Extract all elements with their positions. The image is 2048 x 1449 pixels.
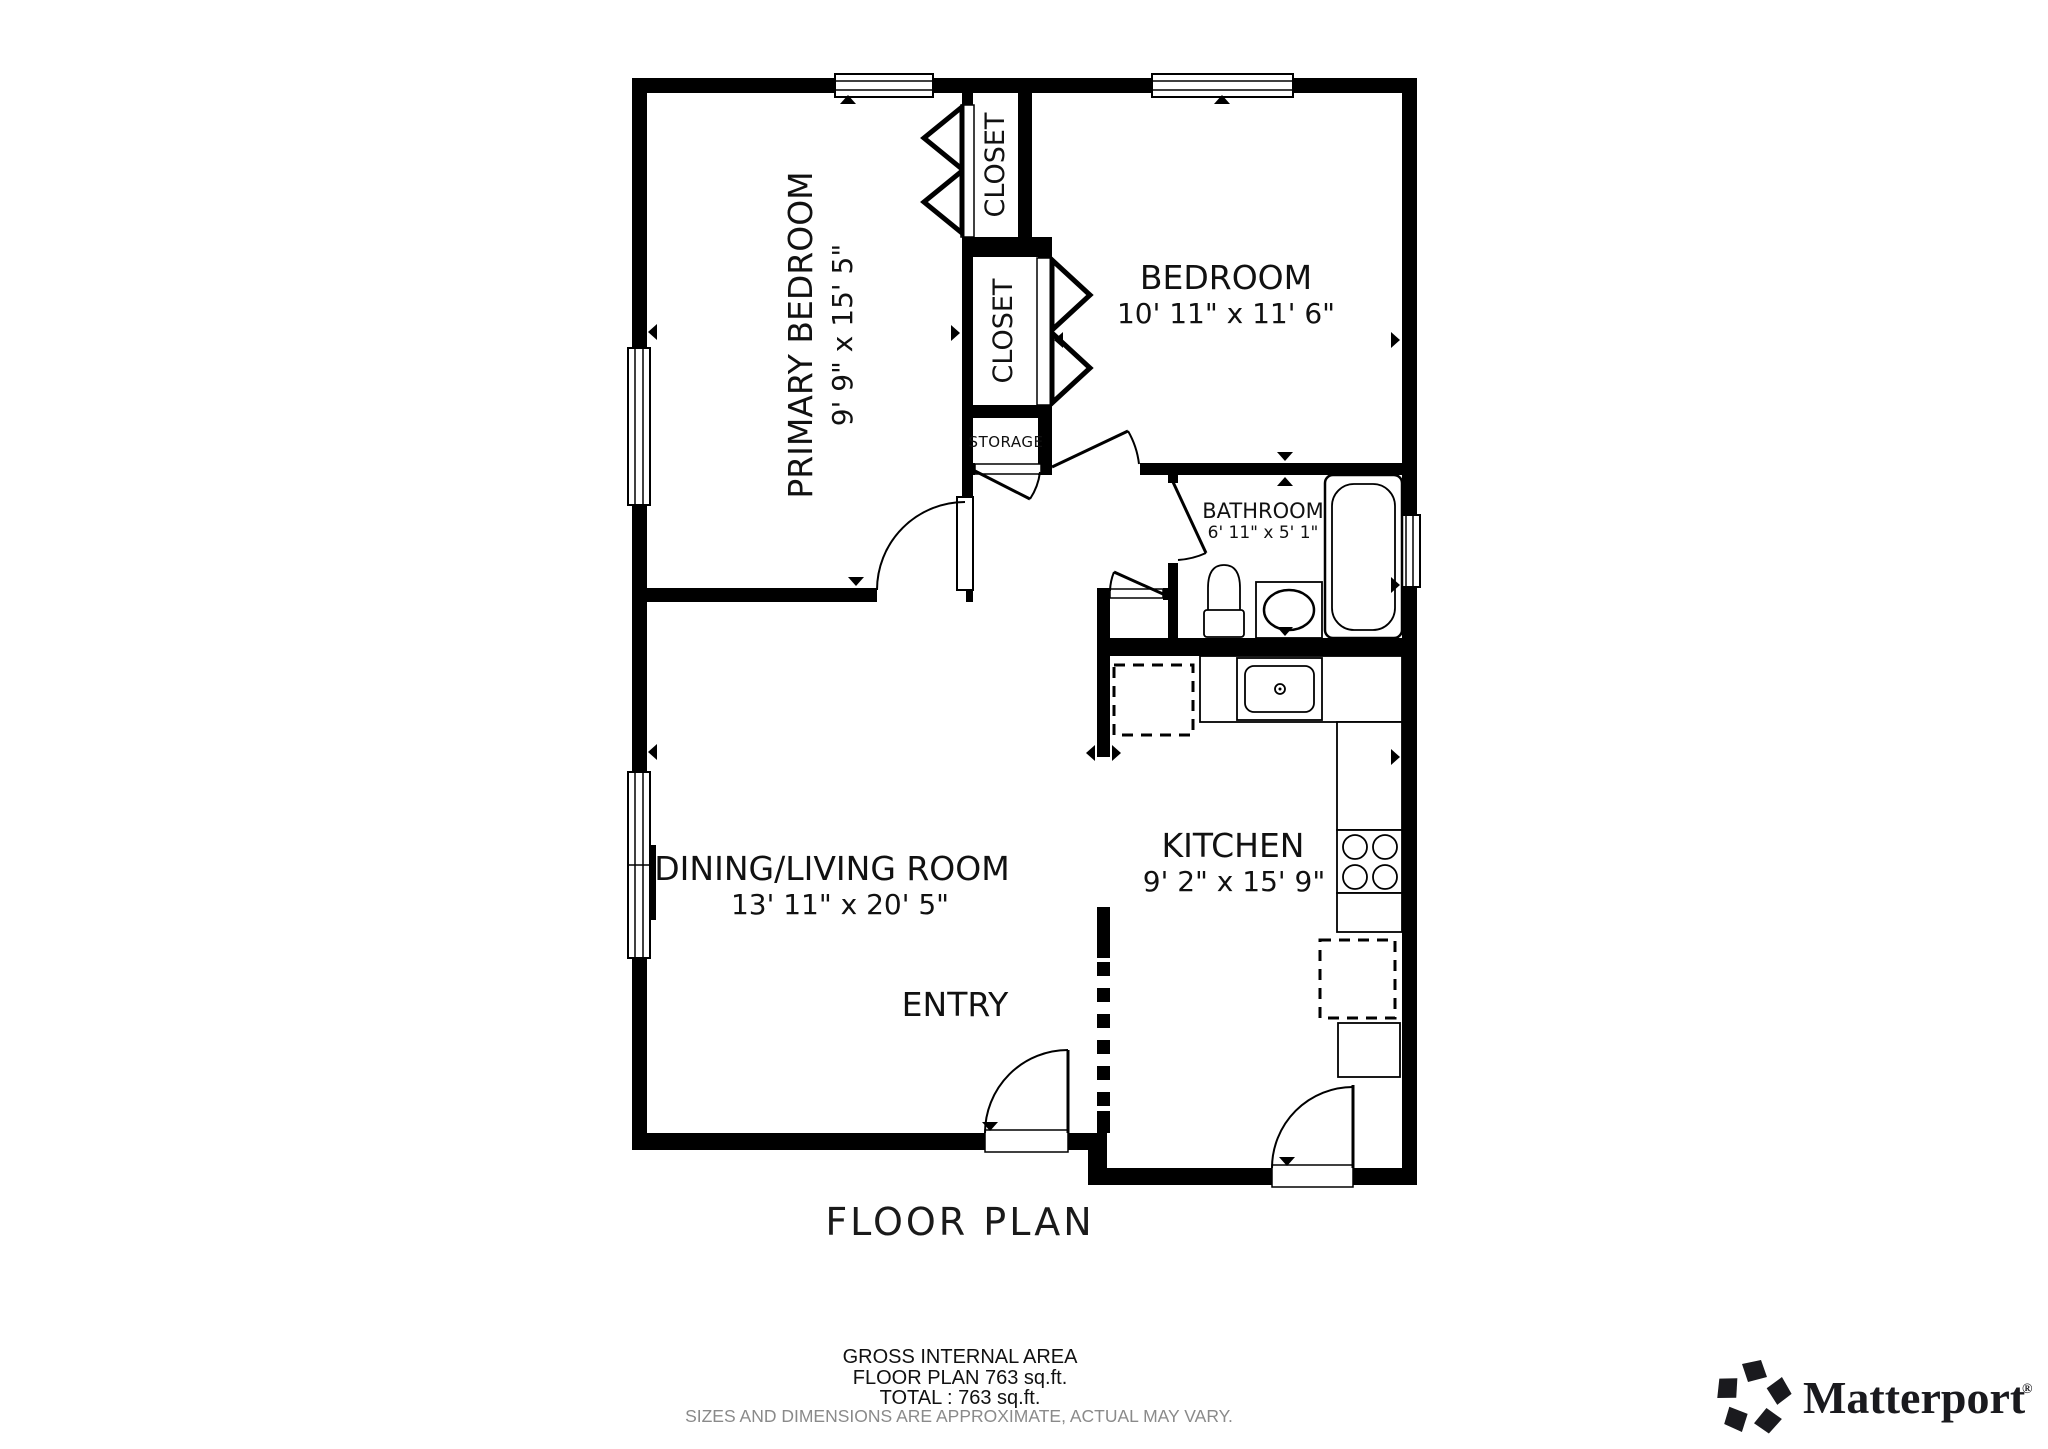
kitchen-counter-below-stove — [1337, 893, 1402, 932]
wall-segment — [1088, 1168, 1272, 1185]
wall-segment — [632, 505, 647, 772]
kitchen-sink — [1237, 658, 1322, 720]
bathtub — [1325, 475, 1402, 638]
bedroom-door — [1052, 431, 1139, 467]
wall-segment — [632, 78, 647, 348]
closet-bottom-label: CLOSET — [988, 278, 1019, 383]
wall-segment — [1293, 78, 1417, 93]
window-left-primary — [628, 348, 650, 505]
wall-segment — [1402, 78, 1417, 515]
wall-segment — [1097, 638, 1402, 656]
bedroom-dimensions: 10' 11" x 11' 6" — [1117, 297, 1335, 330]
closet-top-label: CLOSET — [980, 112, 1011, 217]
page-title: FLOOR PLAN — [825, 1200, 1094, 1244]
wall-segment — [1097, 588, 1110, 757]
wall-segment — [1353, 1168, 1417, 1185]
wall-segment — [632, 1133, 985, 1150]
wall-segment — [1041, 463, 1052, 475]
wall-segment — [632, 588, 877, 602]
wall-segment — [632, 958, 647, 1150]
primary-bedroom-door — [877, 497, 973, 590]
footer-floor-plan-area: FLOOR PLAN 763 sq.ft. — [853, 1367, 1068, 1389]
closet-bottom-bifold-door — [1037, 258, 1090, 405]
entry-door — [985, 1050, 1068, 1152]
kitchen-cabinet — [1338, 1023, 1400, 1077]
storage-door — [975, 464, 1041, 499]
window-top-primary — [835, 74, 933, 97]
hall-closet-door — [1110, 572, 1163, 598]
wall-segment — [933, 78, 1152, 93]
dining-living-room-dimensions: 13' 11" x 20' 5" — [731, 888, 949, 921]
dining-living-room-label: DINING/LIVING ROOM — [654, 849, 1009, 888]
matterport-pinwheel-icon — [1713, 1360, 1793, 1437]
primary-bedroom-label: PRIMARY BEDROOM — [781, 171, 820, 498]
footer-disclaimer: SIZES AND DIMENSIONS ARE APPROXIMATE, AC… — [685, 1406, 1233, 1426]
kitchen-exterior-door — [1272, 1085, 1353, 1187]
bathroom-dimensions: 6' 11" x 5' 1" — [1208, 523, 1319, 543]
bathroom-label: BATHROOM — [1202, 499, 1324, 523]
matterport-registered-mark: ® — [2022, 1382, 2033, 1397]
floor-plan-page: PRIMARY BEDROOM 9' 9" x 15' 5" CLOSET CL… — [0, 0, 2048, 1449]
wall-segment — [1018, 93, 1032, 237]
kitchen-label: KITCHEN — [1162, 826, 1305, 865]
window-top-bedroom — [1152, 74, 1293, 97]
wall-segment — [1168, 475, 1178, 483]
footer-gross-internal-area: GROSS INTERNAL AREA — [843, 1346, 1079, 1368]
toilet — [1204, 565, 1244, 637]
wall-segment — [1402, 587, 1417, 1185]
window-left-living — [628, 772, 650, 958]
stove — [1337, 830, 1402, 893]
kitchen-dimensions: 9' 2" x 15' 9" — [1143, 865, 1325, 898]
dishwasher-dashed-outline — [1114, 665, 1193, 735]
matterport-logo: Matterport ® — [1713, 1360, 2033, 1437]
matterport-wordmark: Matterport — [1803, 1372, 2026, 1423]
entry-label: ENTRY — [902, 985, 1010, 1024]
bathroom-door — [1173, 482, 1206, 560]
primary-bedroom-dimensions: 9' 9" x 15' 5" — [826, 244, 859, 426]
refrigerator-dashed-outline — [1320, 940, 1395, 1018]
wall-segment — [632, 78, 835, 93]
kitchen-counter-right — [1337, 722, 1402, 830]
wall-segment — [1068, 1133, 1088, 1150]
wall-segment — [1097, 907, 1110, 958]
wall-segment — [1097, 1111, 1110, 1133]
wall-segment — [962, 463, 975, 475]
closet-top-bifold-door — [924, 105, 974, 237]
bedroom-label: BEDROOM — [1140, 258, 1312, 297]
storage-label: STORAGE — [969, 433, 1044, 451]
wall-segment — [1140, 463, 1402, 475]
floor-plan-drawing: PRIMARY BEDROOM 9' 9" x 15' 5" CLOSET CL… — [0, 0, 2048, 1449]
